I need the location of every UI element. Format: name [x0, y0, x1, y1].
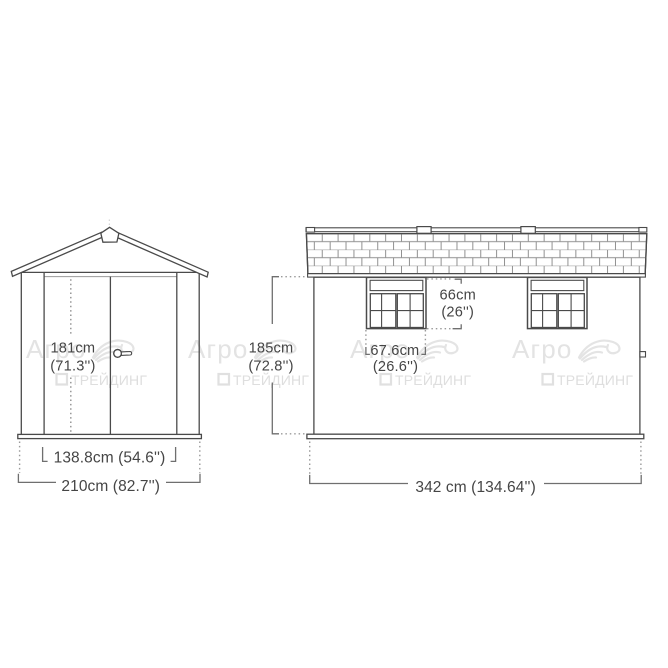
svg-text:67.6cm: 67.6cm [370, 343, 419, 359]
svg-text:(72.8''): (72.8'') [248, 359, 293, 375]
svg-text:(71.3''): (71.3'') [50, 359, 95, 375]
svg-text:342 cm (134.64''): 342 cm (134.64'') [415, 479, 536, 496]
svg-text:210cm (82.7''): 210cm (82.7'') [61, 478, 160, 495]
svg-text:66cm: 66cm [439, 288, 476, 304]
svg-text:181cm: 181cm [50, 340, 95, 356]
svg-text:(26''): (26'') [441, 304, 474, 320]
svg-text:138.8cm (54.6''): 138.8cm (54.6'') [54, 450, 166, 467]
svg-text:185cm: 185cm [249, 340, 294, 356]
svg-text:(26.6''): (26.6'') [373, 359, 418, 375]
